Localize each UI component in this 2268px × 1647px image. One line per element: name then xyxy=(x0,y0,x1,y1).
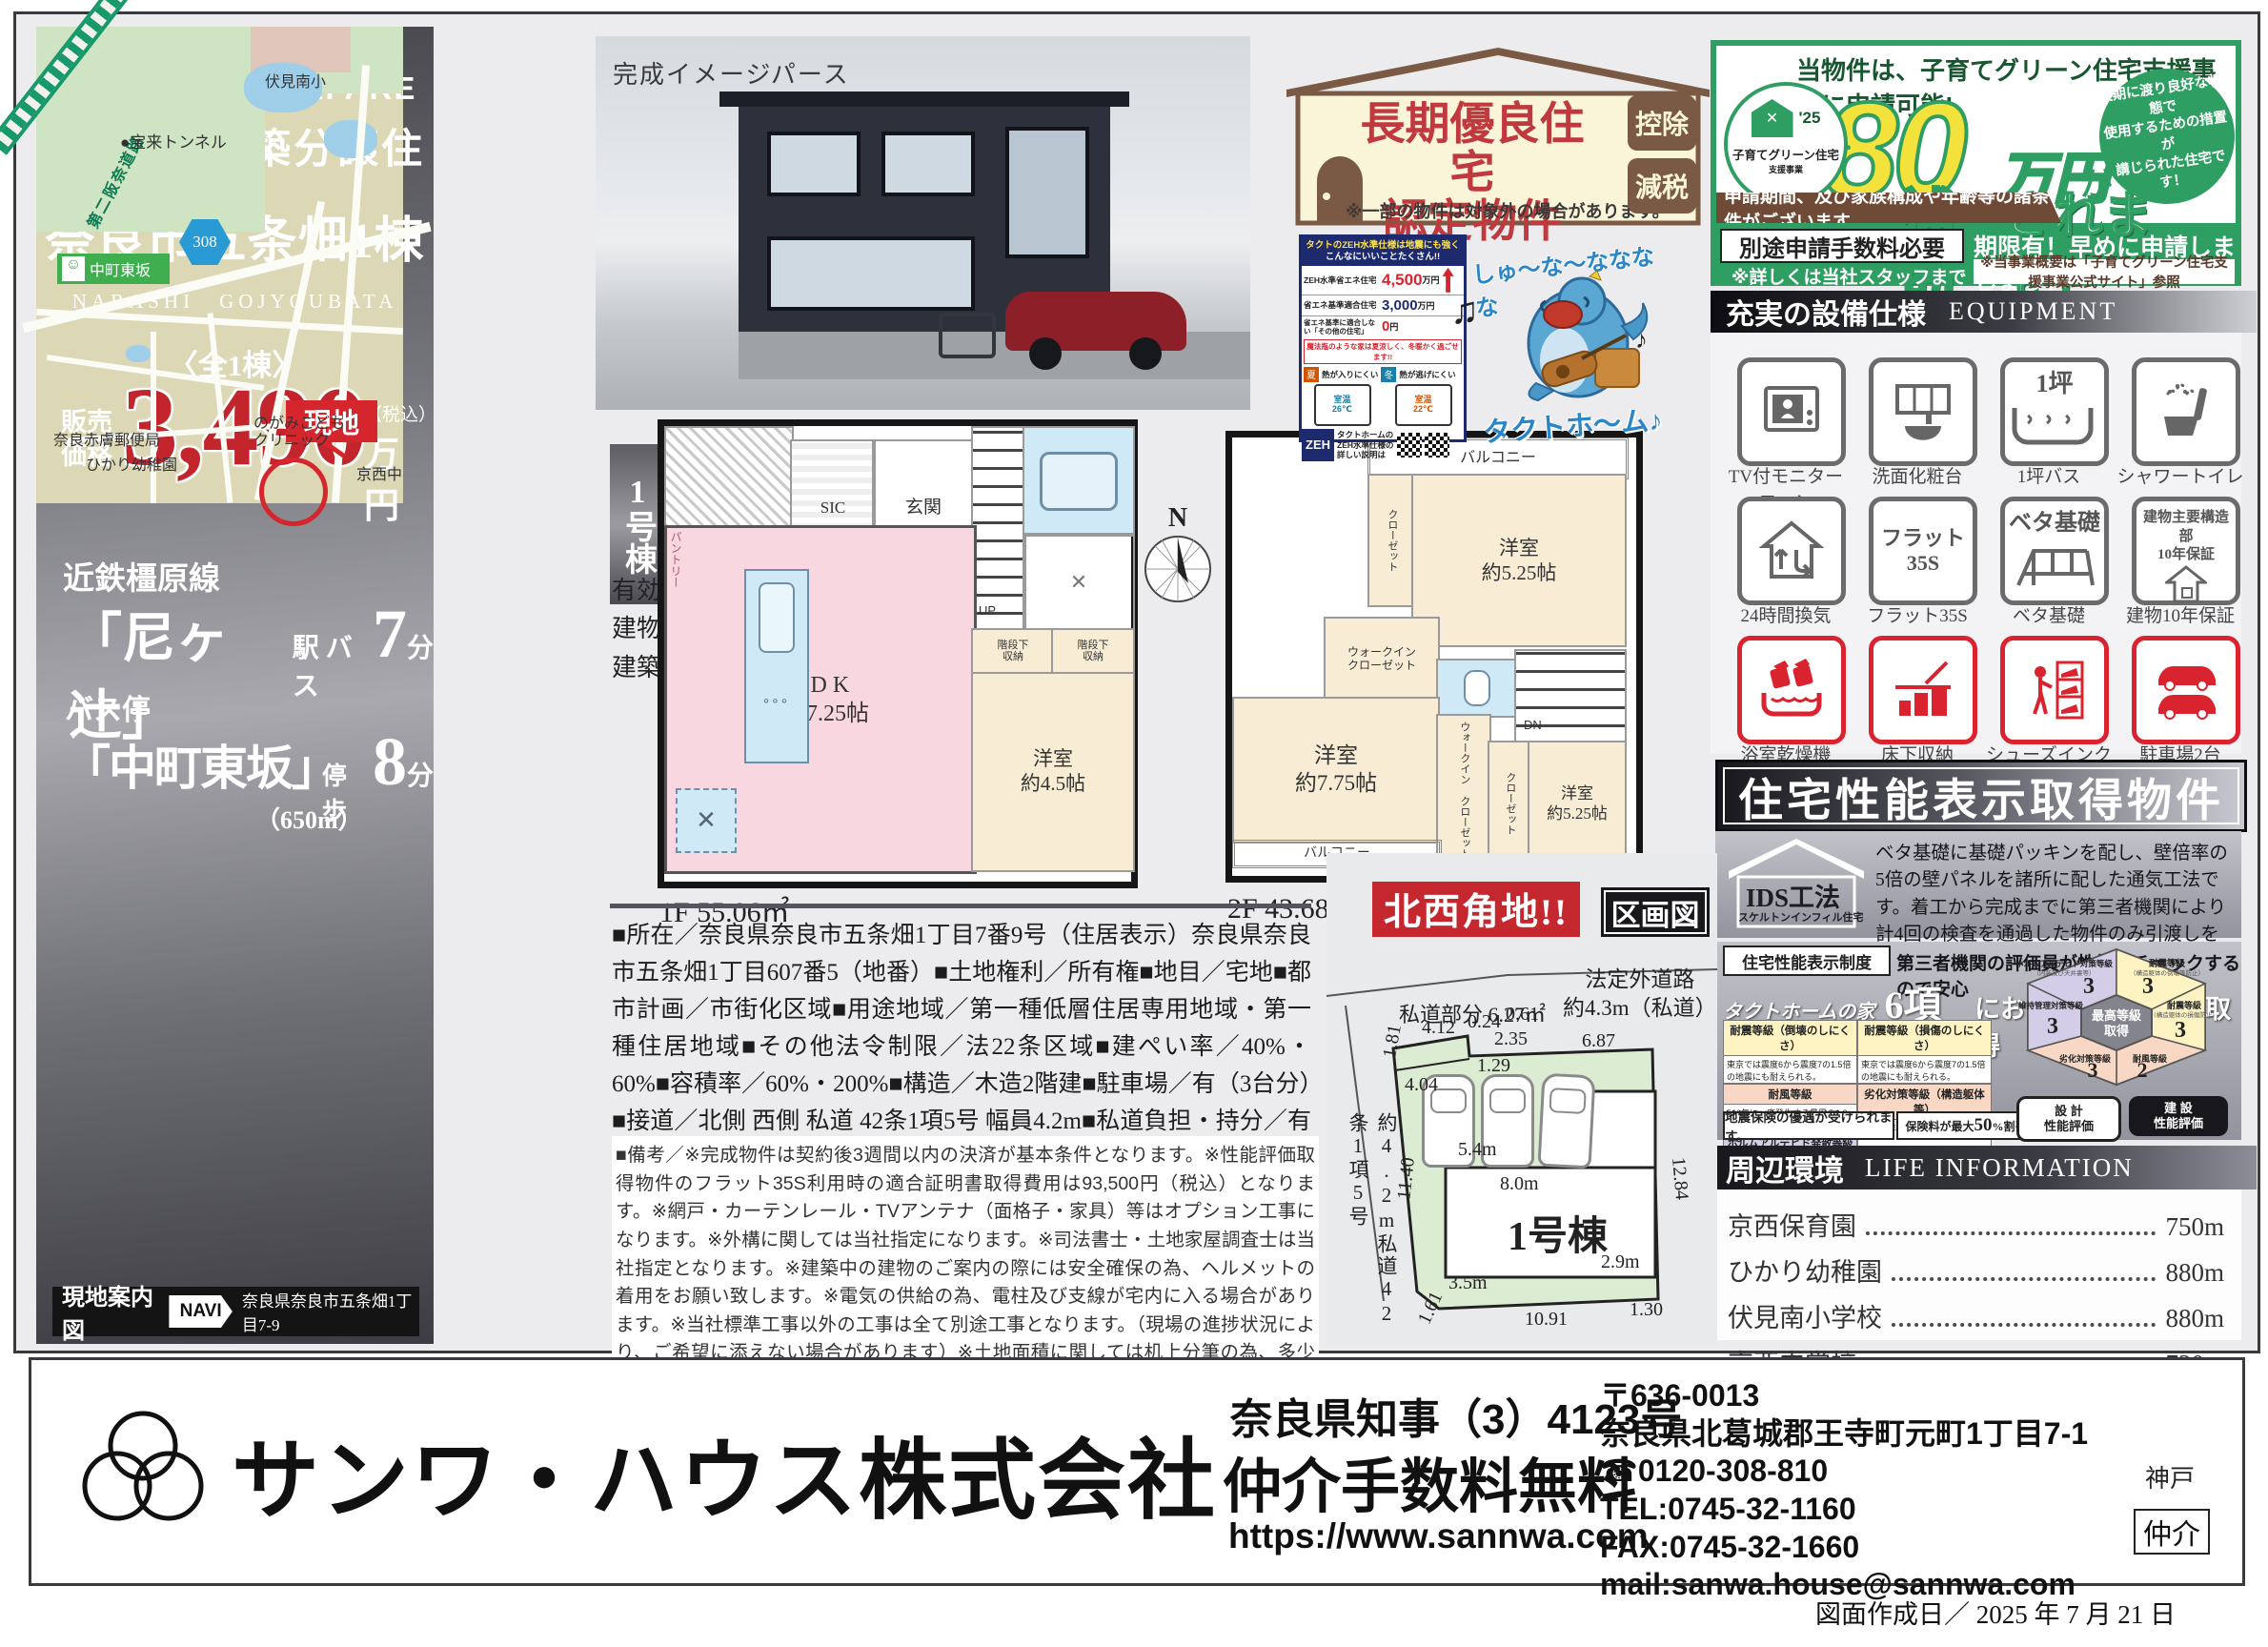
tact-header-1: タクトのZEH水準仕様は地震にも強く xyxy=(1303,240,1463,252)
bus-access: 「中町東坂」 停歩 8 分 xyxy=(63,722,434,827)
perf-system-badge: 住宅性能表示制度 xyxy=(1723,945,1891,976)
f2-room-a: 洋室 約5.25帖 xyxy=(1411,474,1627,647)
tact-row1-label: ZEH水準省エネ住宅 xyxy=(1304,274,1382,286)
site-corner-banner: 北西角地!! xyxy=(1372,882,1580,937)
tact-row1-value: 4,500 xyxy=(1382,271,1423,290)
tact-summer-temp: 室温 26℃ xyxy=(1314,384,1371,426)
hex-l-label: 維持管理対策等級 xyxy=(2018,1001,2084,1010)
f1-understair-1: 階段下 収納 xyxy=(971,628,1055,674)
hex-tl-value: 3 xyxy=(2083,974,2095,999)
subsidy-conditions: 申請期間、及び家族構成や年齢等の諸条件がございます xyxy=(1716,193,2061,223)
hex-tr-sub: （構造躯体の倒壊等防止） xyxy=(2130,968,2204,977)
dotted-leader xyxy=(1892,1305,2156,1327)
subsidy-deadline-note: ※当事業概要は「子育てグリーン住宅支援事業公式サイト」参照 xyxy=(1974,259,2235,284)
bus-stop-icon: ☺ xyxy=(62,256,85,281)
tact-qr-icon-1 xyxy=(1397,433,1422,457)
subsidy-fee: 別途申請手数料必要 xyxy=(1720,229,1964,263)
f1-bath xyxy=(1023,426,1135,537)
render-bicycle xyxy=(939,313,996,358)
dim-3: 2.35 xyxy=(1494,1028,1528,1050)
f2-toilet-bowl xyxy=(1464,670,1490,706)
chukai-badge: 仲介 xyxy=(2134,1509,2210,1555)
tact-winter-badge: 冬 xyxy=(1381,367,1396,382)
cert-badge-koujo: 控除 xyxy=(1628,95,1696,151)
tact-row2-unit: 万円 xyxy=(1418,299,1435,312)
map-busstop-text: 中町東坂 xyxy=(90,257,151,280)
life-name-1: ひかり幼稚園 xyxy=(1728,1251,1882,1289)
bus-distance: （650m） xyxy=(255,801,363,836)
render-caption: 完成イメージパース xyxy=(613,55,850,91)
map-tunnel-label: ●宝来トンネル xyxy=(120,133,227,152)
rating-hexagon-chart: ホルムアルデヒド対策等級 （内装及び天井裏等） 3 耐震等級 （構造躯体の倒壊等… xyxy=(1997,945,2236,1088)
tact-summer-badge: 夏 xyxy=(1304,367,1319,382)
map-clinic-label: のがみこども クリニック xyxy=(253,416,345,451)
equipment-grid: TV付モニターフォン 洗面化粧台 1坪 1坪バス シャワートイレ 24時間換気 … xyxy=(1711,333,2241,754)
f1-room: 洋室 約4.5帖 xyxy=(971,670,1135,872)
f2-room-c: 洋室 約5.25帖 xyxy=(1528,741,1627,866)
bath-icon: 1坪 xyxy=(2000,357,2109,466)
cert-line1: 長期優良住宅 xyxy=(1339,100,1606,197)
tel: TEL:0745-32-1160 xyxy=(1600,1491,2088,1529)
hex-center-1: 最高等級 xyxy=(2092,1008,2141,1023)
perf-row1-body: 東京では震度6から震度7の1.5倍の地震にも耐えられる。 xyxy=(1857,1056,1992,1084)
foundation-icon: ベタ基礎 xyxy=(2000,497,2109,605)
ids-section: IDS工法 スケルトンインフィル住宅 ベタ基礎に基礎パッキンを配し、壁倍率の5倍… xyxy=(1715,831,2241,938)
mascot: しゅ〜な〜なななな タクトホ〜ム♪ ♫ ♪ xyxy=(1466,240,1675,445)
f1-stairs xyxy=(971,426,1026,632)
dim-15: 1.30 xyxy=(1630,1299,1663,1321)
house-render: 完成イメージパース xyxy=(596,36,1250,410)
dotted-leader xyxy=(1866,1213,2156,1235)
performance-body: 住宅性能表示制度 第三者機関の評価員が性能をチェックするので安心 タクトホームの… xyxy=(1715,942,2241,1140)
freedial: ☎0120-308-810 xyxy=(1600,1453,2088,1491)
dim-11: 12.84 xyxy=(1667,1156,1692,1201)
tact-footer-text: タクトホームの ZEH水準仕様の 詳しい説明は xyxy=(1337,430,1394,459)
f2-wic-2: ウォークイン クローゼット xyxy=(1436,714,1491,866)
left-panel: GRAFARE 次世代につなげる ZEH 水準仕様 GRAFARE 新築分譲住宅… xyxy=(36,27,434,1344)
tact-row-3: 省エネ基準に適合しない「その他の住宅」 0 円 xyxy=(1302,316,1464,337)
dim-9: 8.0m xyxy=(1500,1173,1539,1195)
company-logo-icon xyxy=(71,1406,214,1530)
flat35s-icon: フラット 35S xyxy=(1869,497,1977,605)
dim-7: 4.04 xyxy=(1405,1074,1438,1096)
tact-summer-text: 熱が入りにくい xyxy=(1322,369,1378,380)
dim-14: 10.91 xyxy=(1525,1309,1568,1331)
equip-label-5: フラット35S xyxy=(1852,601,1983,627)
station-mode: 駅 バス xyxy=(293,627,365,703)
site-road-left-label: 約4.2m私道42条1項5号 xyxy=(1344,1112,1401,1347)
tact-row-2: 省エネ基準適合住宅 3,000 万円 xyxy=(1302,295,1464,316)
map-pond-2 xyxy=(324,120,377,158)
dim-2: 0.61 xyxy=(1506,1004,1539,1026)
f2-closet-1: クローゼット xyxy=(1367,474,1415,607)
dim-0: 4.12 xyxy=(1422,1017,1455,1039)
equipment-title-en: EQUIPMENT xyxy=(1949,297,2117,326)
hex-r-label: 耐震等級 xyxy=(2167,1000,2201,1010)
hex-bl-value: 3 xyxy=(2088,1058,2098,1082)
subsidy-badge-sub: 支援事業 xyxy=(1728,163,1844,175)
equip-label-4: 24時間換気 xyxy=(1720,601,1852,627)
subsidy-fee-note: ※詳しくは当社スタッフまで xyxy=(1731,263,1966,289)
f2-toilet xyxy=(1436,659,1518,718)
f1-up-label: UP xyxy=(979,603,996,618)
navi-address: 奈良県奈良市五条畑1丁目7-9 xyxy=(242,1288,419,1335)
tact-row3-label: 省エネ基準に適合しない「その他の住宅」 xyxy=(1304,318,1382,335)
render-window-1 xyxy=(767,132,861,196)
life-header: 周辺環境 LIFE INFORMATION xyxy=(1711,1146,2257,1189)
equip-label-6: ベタ基礎 xyxy=(1983,601,2115,627)
perf-row1-head: 耐震等級（損傷のしにくさ） xyxy=(1857,1020,1992,1056)
life-name-2: 伏見南小学校 xyxy=(1728,1297,1882,1334)
floor1-plan: SIC 玄関 UP ✕ 収納 L D K 約17.25帖 °°° パントリー ✕… xyxy=(658,419,1138,888)
f1-bathtub xyxy=(1040,452,1118,511)
foundation-icon-text: ベタ基礎 xyxy=(2005,501,2104,538)
map-school-n-label: 伏見南小 xyxy=(265,74,326,91)
bus-stop-name: 「中町東坂」 xyxy=(63,730,322,799)
tact-footer: ZEH タクトホームの ZEH水準仕様の 詳しい説明は xyxy=(1302,429,1464,461)
tact-zeh-logo: ZEH xyxy=(1302,429,1334,461)
rail-line: 近鉄橿原線 xyxy=(63,553,220,599)
perf-ins2b: 50 xyxy=(1974,1115,1993,1136)
map-road-v3 xyxy=(151,332,156,503)
tact-row3-value: 0 xyxy=(1382,318,1389,335)
perf-row0-body: 東京では震度6から震度7の1.5倍の地震にも耐えられる。 xyxy=(1723,1056,1857,1084)
tact-ad: タクトのZEH水準仕様は地震にも強く こんなにいいことたくさん!! ZEH水準省… xyxy=(1299,234,1467,442)
drawing-date: 図面作成日／ 2025 年 7 月 21 日 xyxy=(1815,1594,2176,1631)
map-kinder-label: ひかり幼稚園 xyxy=(86,457,177,475)
tact-row2-value: 3,000 xyxy=(1382,297,1418,314)
perf-row2-head: 耐風等級 xyxy=(1723,1084,1857,1105)
dim-12: 3.5m xyxy=(1448,1272,1488,1294)
perf-insurance-2: 保険料が最大 50 %割引 xyxy=(1896,1111,2035,1140)
floor2-plan: バルコニー クローゼット 洋室 約5.25帖 ウォークイン クローゼット DN … xyxy=(1225,431,1643,883)
navi-bar: 現地案内図 NAVI 奈良県奈良市五条畑1丁目7-9 xyxy=(52,1287,419,1336)
bath-icon-text: 1坪 xyxy=(2005,362,2104,400)
design-eval-badge: 設 計 性能評価 xyxy=(2016,1096,2121,1142)
details-divider xyxy=(610,904,1311,908)
equip-label-2: 1坪バス xyxy=(1983,462,2115,488)
site-plan: 北西角地!! 区画図 私道部分 6.27㎡ 法定外道路 約4.3m（私道） 約4… xyxy=(1326,853,1717,1347)
brokerage-fee-free: 仲介手数料無料 xyxy=(1223,1438,1636,1524)
f1-pantry-label: パントリー xyxy=(668,531,684,588)
music-note-icon-2: ♪ xyxy=(1635,326,1648,355)
tact-header: タクトのZEH水準仕様は地震にも強く こんなにいいことたくさん!! xyxy=(1302,237,1464,266)
subsidy-badge-year: '25 xyxy=(1799,109,1821,128)
construction-eval-badge: 建 設 性能評価 xyxy=(2129,1096,2228,1136)
performance-title: 住宅性能表示取得物件 xyxy=(1723,767,2239,824)
station-min: 7 xyxy=(373,595,407,674)
tact-houses: 室温 26℃ 室温 22℃ xyxy=(1302,384,1464,426)
f2-dn-label: DN xyxy=(1524,718,1542,732)
perf-row0-head: 耐震等級（倒壊のしにくさ） xyxy=(1723,1020,1857,1056)
site-unit-label: 1号棟 xyxy=(1508,1204,1608,1262)
life-dist-1: 880m xyxy=(2165,1258,2224,1288)
postal-code: 〒636-0013 xyxy=(1600,1377,2088,1415)
bath-dryer-icon xyxy=(1737,636,1846,744)
f2-wic-1: ウォークイン クローゼット xyxy=(1324,617,1440,701)
life-item-0: 京西保育園750m xyxy=(1728,1206,2224,1243)
compass: N xyxy=(1140,503,1216,602)
perf-insurance-1: 地震保険の優遇が受けられます。 xyxy=(1723,1111,1894,1140)
hex-tr-value: 3 xyxy=(2142,974,2154,999)
green-house-icon: ✕ xyxy=(1752,99,1793,137)
life-title-en: LIFE INFORMATION xyxy=(1865,1153,2134,1183)
vanity-icon xyxy=(1869,357,1977,466)
equip-label-1: 洗面化粧台 xyxy=(1852,462,1983,488)
monitor-phone-icon xyxy=(1737,357,1846,466)
contact-block: 〒636-0013 奈良県北葛城郡王寺町元町1丁目7-1 ☎0120-308-8… xyxy=(1600,1377,2088,1604)
render-window-2 xyxy=(881,132,975,196)
footer: サンワ・ハウス株式会社 奈良県知事（3）4123号 仲介手数料無料 https:… xyxy=(29,1357,2245,1586)
music-note-icon: ♫ xyxy=(1450,288,1479,333)
company-url: https://www.sannwa.com xyxy=(1228,1516,1649,1556)
shoe-closet-icon xyxy=(2000,636,2109,744)
shower-toilet-icon xyxy=(2132,357,2240,466)
subsidy-badge-name: 子育てグリーン住宅 xyxy=(1728,145,1844,163)
bus-min: 8 xyxy=(373,722,407,802)
bus-min-unit: 分 xyxy=(407,755,434,793)
station-min-unit: 分 xyxy=(407,627,434,665)
tact-row1-unit: 万円 xyxy=(1423,274,1440,286)
navi-label: 現地案内図 xyxy=(62,1278,159,1345)
dim-10: 11.40 xyxy=(1393,1156,1420,1200)
tact-row-1: ZEH水準省エネ住宅 4,500 万円 xyxy=(1302,266,1464,295)
hex-r-value: 3 xyxy=(2175,1018,2186,1043)
parking-icon xyxy=(2132,636,2240,744)
render-window-3 xyxy=(1005,127,1089,258)
map-post-label: 奈良赤膚郵便局 xyxy=(53,433,160,450)
equip-label-7: 建物10年保証 xyxy=(2115,601,2246,627)
company-name: サンワ・ハウス株式会社 xyxy=(232,1410,1217,1536)
life-list: 京西保育園750m ひかり幼稚園880m 伏見南小学校880m 京西中学校720… xyxy=(1711,1189,2241,1340)
subsidy-logo-house-row: ✕ '25 xyxy=(1728,99,1844,137)
f1-washroom: ✕ xyxy=(1023,533,1135,632)
f1-understair-2: 階段下 収納 xyxy=(1051,628,1135,674)
dotted-leader xyxy=(1892,1259,2156,1281)
compass-n-label: N xyxy=(1140,503,1216,534)
equipment-header: 充実の設備仕様 EQUIPMENT xyxy=(1711,291,2257,333)
equipment-title: 充実の設備仕様 xyxy=(1726,291,1926,333)
performance-header: 住宅性能表示取得物件 xyxy=(1715,760,2247,832)
dim-8: 5.4m xyxy=(1458,1139,1497,1161)
subsidy-banner: 当物件は、子育てグリーン住宅支援事業に申請可能! 80 万円 が 補助 されます… xyxy=(1711,40,2241,286)
render-car-wheel-2 xyxy=(1129,337,1162,370)
cert-title: 長期優良住宅 認定物件 xyxy=(1339,100,1606,245)
site-map-label: 区画図 xyxy=(1601,887,1710,937)
perf-ins2a: 保険料が最大 xyxy=(1905,1118,1974,1134)
ids-sub: スケルトンインフィル住宅 xyxy=(1738,909,1863,925)
hex-tl-label: ホルムアルデヒド対策等級 xyxy=(2015,959,2113,968)
cert-badge-genzei: 減税 xyxy=(1628,158,1696,213)
dim-13: 2.9m xyxy=(1601,1251,1640,1273)
floor-storage-icon xyxy=(1869,636,1977,744)
company-address: 奈良県北葛城郡王寺町元町1丁目7-1 xyxy=(1600,1415,2088,1454)
warranty-icon-text: 建物主要構造部 10年保証 xyxy=(2136,509,2236,565)
life-item-2: 伏見南小学校880m xyxy=(1728,1297,2224,1334)
hex-bl-label: 劣化対策等級 xyxy=(2059,1053,2111,1064)
life-name-0: 京西保育園 xyxy=(1728,1206,1856,1243)
warranty-icon: 建物主要構造部 10年保証 xyxy=(2132,497,2240,605)
dim-5: 6.87 xyxy=(1582,1030,1615,1052)
life-dist-2: 880m xyxy=(2165,1304,2224,1333)
tact-row2-label: 省エネ基準適合住宅 xyxy=(1304,299,1382,311)
site-road-right-label: 法定外道路 約4.3m（私道） xyxy=(1563,966,1717,1023)
render-house-roof xyxy=(719,91,1129,107)
ventilation-icon xyxy=(1737,497,1846,605)
mascot-name: タクトホ〜ム♪ xyxy=(1482,397,1664,450)
life-item-1: ひかり幼稚園880m xyxy=(1728,1251,2224,1289)
compass-rose-icon xyxy=(1143,534,1213,604)
map-pond-3 xyxy=(126,345,151,362)
fax: FAX:0745-32-1660 xyxy=(1600,1529,2088,1567)
navi-badge: NAVI xyxy=(169,1295,233,1328)
render-window-4 xyxy=(767,236,975,311)
f1-kitchen-stove: °°° xyxy=(746,697,807,714)
map-school-s-label: 京西中 xyxy=(356,467,402,484)
dim-4: 1.29 xyxy=(1477,1055,1510,1077)
f1-utility: ✕ xyxy=(676,788,737,853)
tact-qr-icon-2 xyxy=(1425,433,1449,457)
tact-winter-temp: 室温 22℃ xyxy=(1395,384,1452,426)
hex-l-value: 3 xyxy=(2047,1014,2058,1039)
tact-seasons: 夏 熱が入りにくい 冬 熱が逃げにくい xyxy=(1304,367,1462,382)
f1-porch xyxy=(664,426,794,529)
hex-tr-label: 耐震等級 xyxy=(2149,958,2186,969)
cert-note: ※一部の物件は対象外の場合があります。 xyxy=(1346,198,1670,223)
f2-room-b: 洋室 約7.75帖 xyxy=(1232,697,1440,844)
f1-kitchen-counter: °°° xyxy=(744,569,809,763)
life-dist-0: 750m xyxy=(2165,1212,2224,1242)
tact-note: 魔法瓶のような家は夏涼しく、冬暖かく過ごせます!! xyxy=(1304,339,1462,364)
f1-kitchen-sink xyxy=(759,582,795,653)
tact-header-2: こんなにいいことたくさん!! xyxy=(1303,252,1463,263)
equip-label-3: シャワートイレ xyxy=(2115,462,2246,488)
handwritten-note: 神戸 xyxy=(2145,1459,2195,1494)
life-title: 周辺環境 xyxy=(1726,1147,1844,1189)
render-car-wheel-1 xyxy=(1029,337,1062,370)
map-busstop-label: ☺ 中町東坂 xyxy=(57,254,170,284)
flyer-page: GRAFARE 次世代につなげる ZEH 水準仕様 GRAFARE 新築分譲住宅… xyxy=(0,0,2268,1647)
site-car-3 xyxy=(1537,1073,1595,1169)
tact-row3-unit: 円 xyxy=(1389,320,1398,333)
tact-winter-text: 熱が逃げにくい xyxy=(1399,369,1455,380)
subsidy-logo-badge: ✕ '25 子育てグリーン住宅 支援事業 xyxy=(1724,82,1848,206)
hex-center-2: 取得 xyxy=(2104,1024,2129,1038)
f2-closet-2: クローゼット xyxy=(1488,741,1531,866)
hex-br-value: 2 xyxy=(2137,1058,2148,1082)
